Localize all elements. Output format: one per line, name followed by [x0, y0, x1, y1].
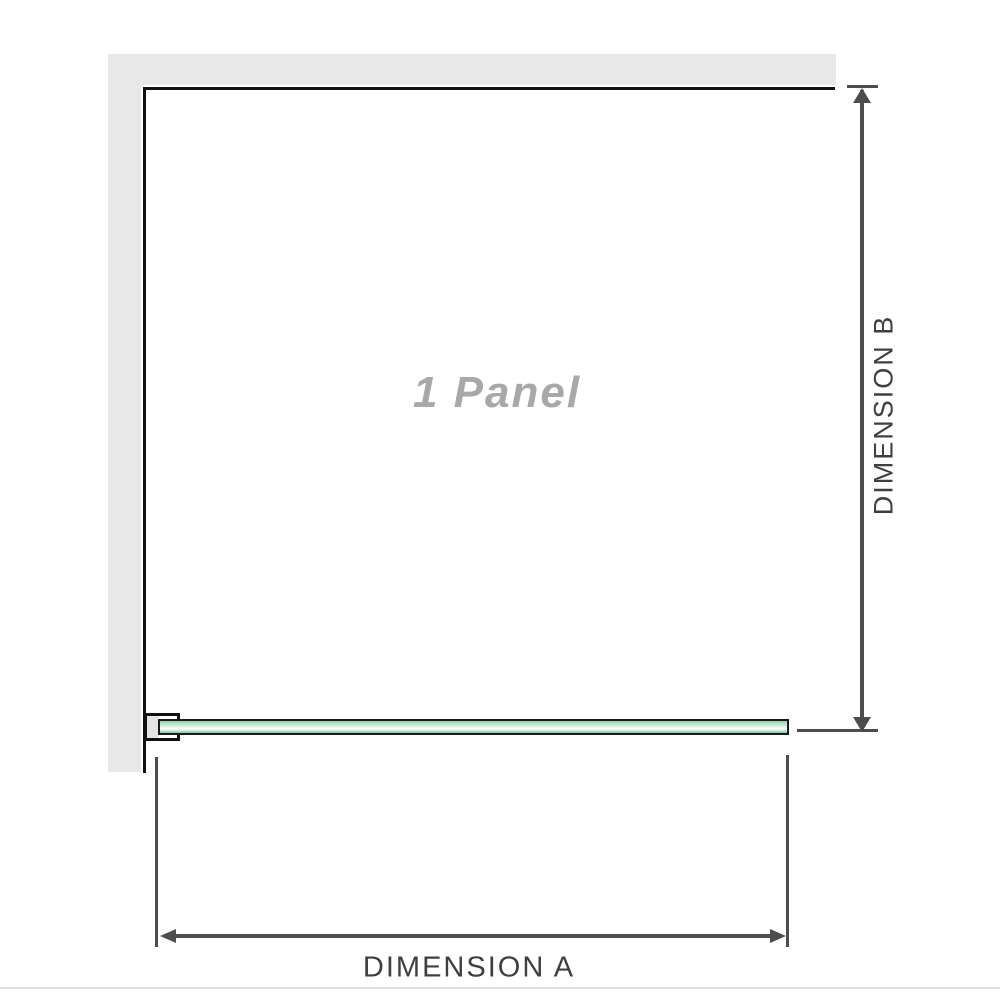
- panel-count-label: 1 Panel: [297, 368, 697, 418]
- wall-top-strip: [108, 54, 836, 85]
- dimension-b-label: DIMENSION B: [869, 315, 900, 516]
- dimension-a-left-extension-line: [155, 757, 158, 947]
- dimension-a-line: [166, 934, 780, 938]
- arrowhead-down-icon: [853, 717, 871, 732]
- glass-panel-bar: [158, 719, 789, 735]
- wall-left-strip: [108, 54, 141, 772]
- dimension-b-line: [860, 90, 864, 730]
- arrowhead-up-icon: [853, 88, 871, 103]
- shower-panel-dimension-diagram: 1 Panel DIMENSION B DIMENSION A: [0, 0, 1000, 1000]
- panel-left-edge: [143, 87, 146, 773]
- arrowhead-right-icon: [770, 929, 786, 943]
- panel-top-edge: [143, 87, 835, 90]
- bottom-divider-line: [0, 987, 1000, 989]
- dimension-a-right-extension-line: [786, 755, 789, 947]
- arrowhead-left-icon: [160, 929, 176, 943]
- dimension-a-label: DIMENSION A: [363, 952, 575, 985]
